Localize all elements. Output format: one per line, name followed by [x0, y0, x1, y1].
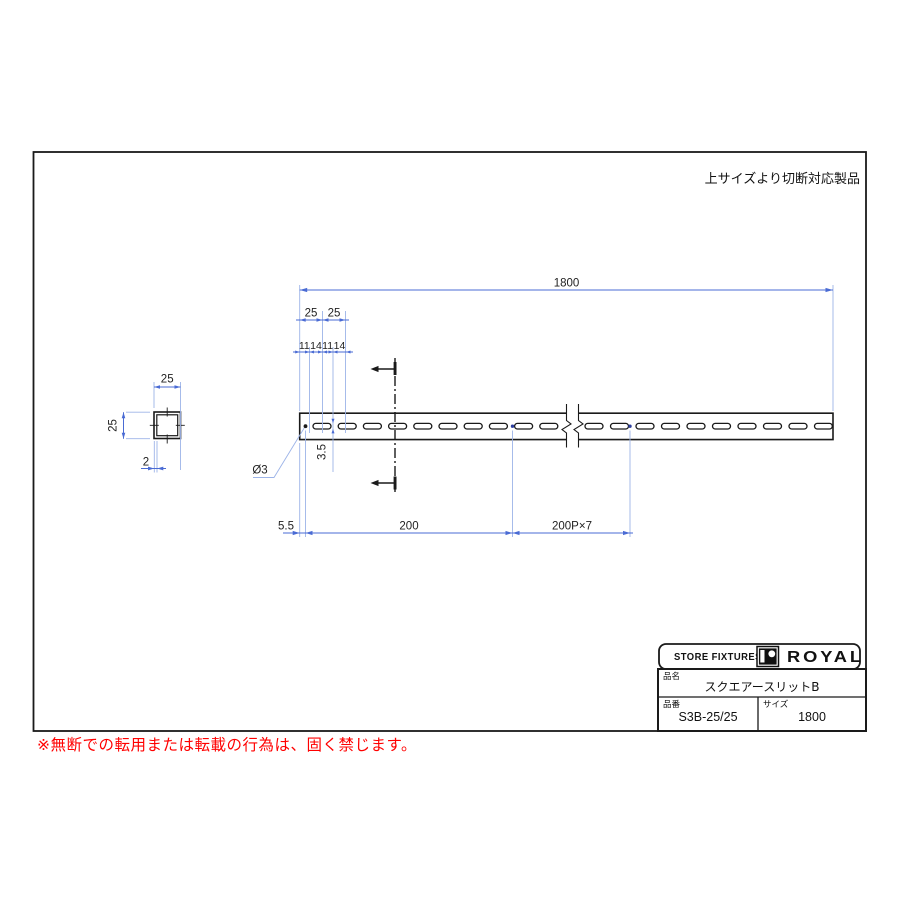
dim-section-height: 25 [108, 419, 120, 432]
product-code-label: 品番 [663, 699, 681, 710]
product-name-value: スクエアースリットB [705, 680, 820, 694]
size-label: サイズ [763, 699, 789, 710]
dim-first-pitch: 200 [399, 521, 418, 533]
dim-seg4: 14 [334, 340, 346, 352]
slit [389, 423, 407, 429]
slit [764, 423, 782, 429]
slit [338, 423, 356, 429]
note-cut-from-larger: 上サイズより切断対応製品 [705, 171, 860, 187]
break-line [574, 404, 583, 448]
slit [662, 423, 680, 429]
arrowhead [122, 433, 126, 439]
arrowhead [300, 288, 308, 292]
dim-seg2: 14 [310, 340, 322, 352]
arrowhead [506, 531, 513, 535]
arrowhead [332, 419, 335, 424]
size-value: 1800 [798, 710, 826, 724]
dim-section-width: 25 [161, 374, 174, 386]
brand-wordmark: ROYAL [787, 648, 864, 665]
dim-seg3: 11 [322, 340, 333, 352]
royal-logo-icon [757, 647, 779, 667]
dim-seg1: 11 [299, 340, 310, 352]
slit [585, 423, 603, 429]
extension-line [154, 382, 181, 470]
dim-wall-thickness: 2 [143, 457, 149, 469]
dim-pitch-run: 200P×7 [552, 521, 592, 533]
cad-canvas: 上サイズより切断対応製品 25 25 2 [0, 0, 900, 900]
arrowhead [346, 351, 351, 354]
section-arrowhead [371, 366, 379, 372]
tube-inner-wall [157, 415, 178, 436]
section-arrowhead [371, 480, 379, 486]
store-fixtures-label: STORE FIXTURES [674, 652, 762, 664]
slit-row-right [585, 423, 832, 429]
dimensions: 1800 25 25 11 14 11 14 3.5 Ø3 5.5 200 20… [252, 278, 833, 538]
break-line [562, 404, 571, 448]
extension-line [154, 441, 157, 473]
slit [611, 423, 629, 429]
cross-section-view: 25 25 2 [108, 374, 185, 473]
arrowhead [513, 531, 520, 535]
slit [713, 423, 731, 429]
slit [738, 423, 756, 429]
arrowhead [623, 531, 630, 535]
logo-dot [768, 650, 775, 657]
extension-line [126, 412, 150, 439]
slit [636, 423, 654, 429]
copyright-warning: ※無断での転用または転載の行為は、固く禁じます。 [37, 736, 417, 754]
drawing-sheet: 上サイズより切断対応製品 25 25 2 [0, 0, 900, 900]
product-name-label: 品名 [663, 671, 680, 682]
arrowhead [157, 467, 163, 471]
arrowhead [826, 288, 834, 292]
slit [439, 423, 457, 429]
dim-hole-diameter: Ø3 [252, 465, 267, 477]
reference-point [628, 425, 631, 428]
slit [687, 423, 705, 429]
arrowhead [306, 531, 313, 535]
dim-pitch-b: 25 [328, 308, 341, 320]
slit [464, 423, 482, 429]
arrowhead [154, 385, 160, 389]
end-hole [304, 424, 308, 428]
title-block: STORE FIXTURES ROYAL 品名 スクエアースリットB 品番 S3… [658, 644, 866, 731]
slit [815, 423, 833, 429]
dim-end-offset: 5.5 [278, 521, 294, 533]
slit [414, 423, 432, 429]
arrowhead [175, 385, 181, 389]
arrowhead [122, 412, 126, 418]
slit [515, 423, 533, 429]
product-code-value: S3B-25/25 [678, 710, 737, 724]
dim-overall-length: 1800 [554, 278, 580, 290]
logo-notch [760, 650, 764, 663]
arrowhead [332, 429, 335, 434]
slit [789, 423, 807, 429]
slit [313, 423, 331, 429]
slit [489, 423, 507, 429]
reference-point [511, 425, 514, 428]
slit [540, 423, 558, 429]
bar-side-view [300, 358, 833, 492]
dim-pitch-a: 25 [305, 308, 318, 320]
slit [363, 423, 381, 429]
dim-slit-height: 3.5 [317, 444, 329, 460]
slit-row-left [313, 423, 558, 429]
